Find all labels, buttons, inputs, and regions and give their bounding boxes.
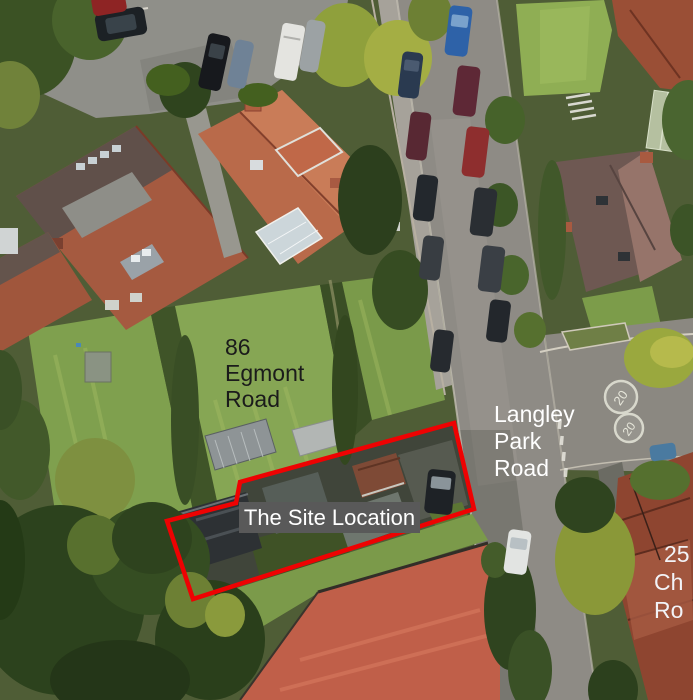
site-location-text: The Site Location xyxy=(244,505,415,531)
aerial-photo: 20 20 xyxy=(0,0,693,700)
aerial-map: 20 20 86 Egmont Road Langley Park Road T… xyxy=(0,0,693,700)
speed-roundel: 20 xyxy=(605,381,637,413)
site-car xyxy=(424,469,456,516)
site-location-callout: The Site Location xyxy=(239,502,420,533)
speed-roundel: 20 xyxy=(615,414,643,442)
